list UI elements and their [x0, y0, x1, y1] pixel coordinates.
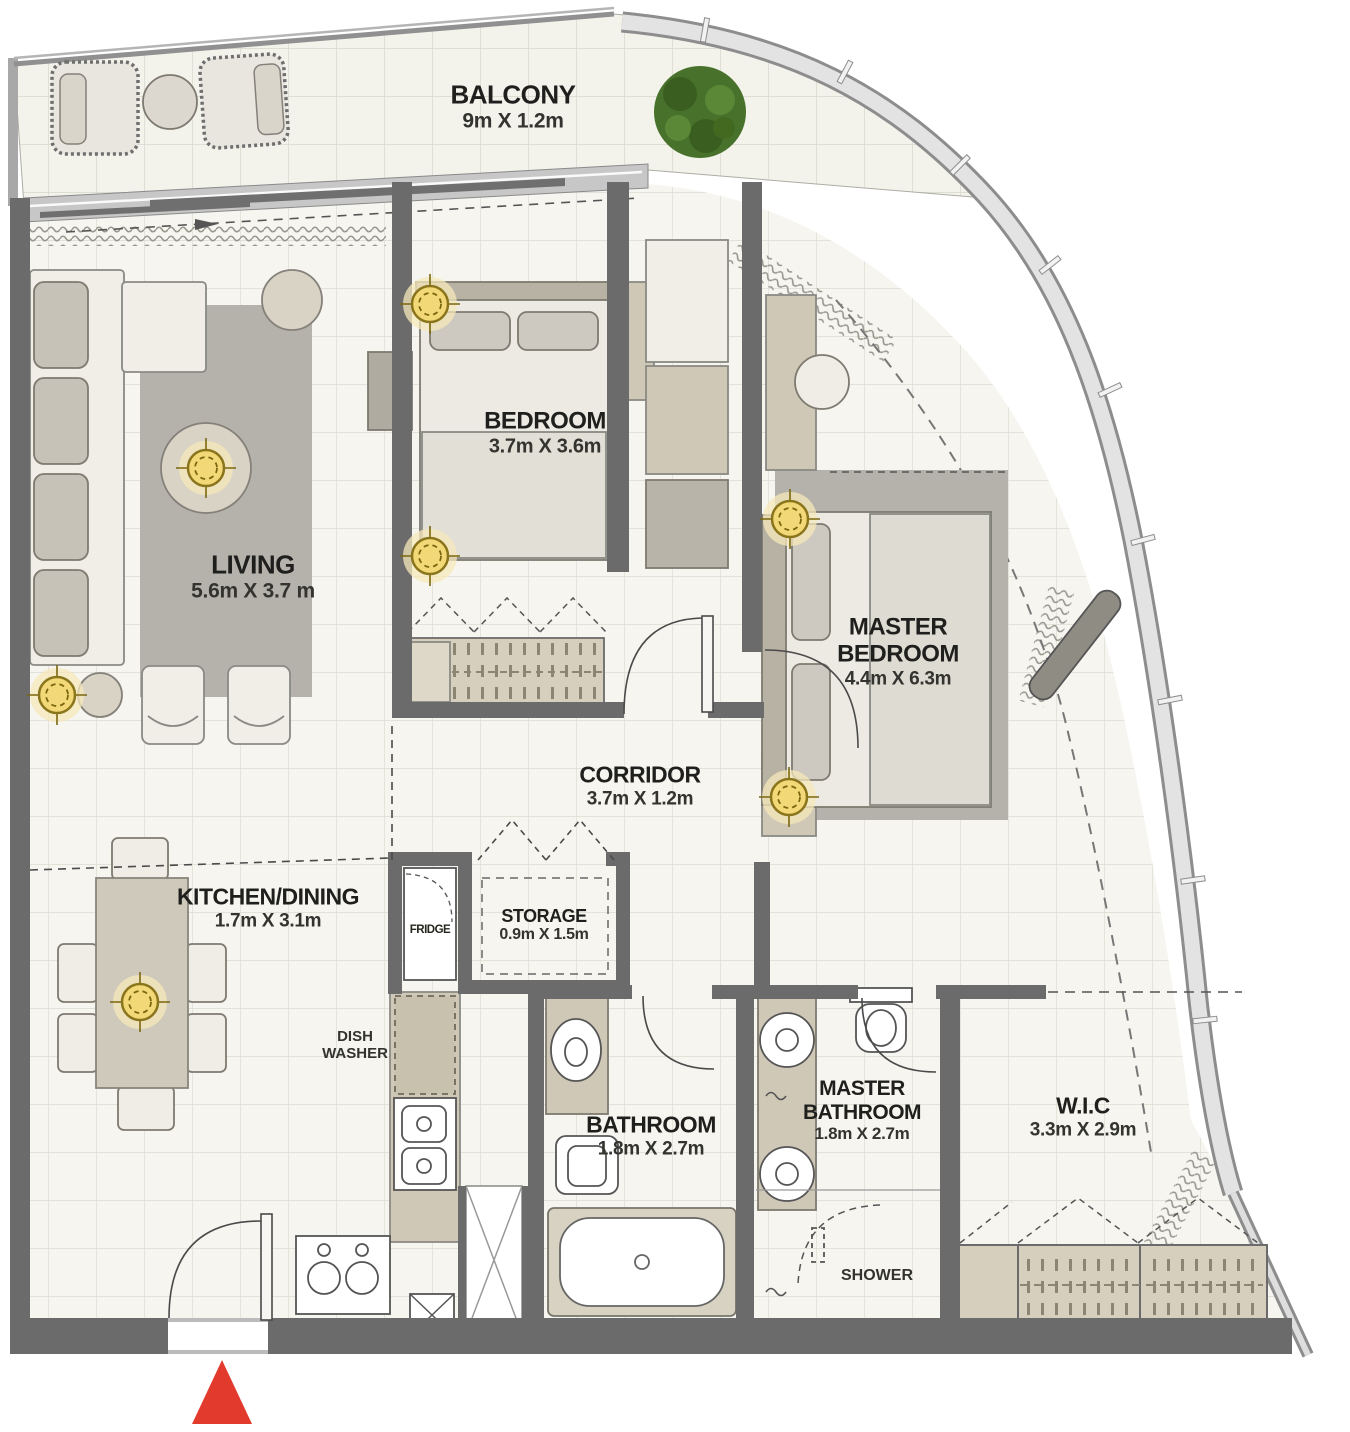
sofa-corner-seat	[122, 282, 206, 372]
plant	[654, 66, 746, 158]
burner	[308, 1262, 340, 1294]
pillow	[518, 312, 598, 350]
dining-chair	[186, 1014, 226, 1072]
washbasin	[760, 1013, 814, 1067]
armchair	[228, 666, 290, 744]
burner	[346, 1262, 378, 1294]
toilet-cistern	[850, 988, 912, 1002]
left-wall	[10, 198, 30, 1354]
cabinet	[646, 480, 728, 568]
entrance-opening	[168, 1318, 268, 1354]
toilet	[856, 1004, 906, 1052]
dishwasher	[395, 996, 455, 1094]
master-bed-headboard	[762, 515, 788, 805]
floor-plan-drawing	[0, 0, 1350, 1432]
side-table	[262, 270, 322, 330]
dining-chair	[118, 1086, 174, 1130]
washbasin	[551, 1019, 601, 1081]
bottom-wall	[10, 1318, 168, 1354]
entrance-door-leaf	[261, 1214, 272, 1320]
washbasin	[760, 1147, 814, 1201]
dining-chair	[58, 1014, 98, 1072]
balcony-left-edge	[8, 58, 18, 206]
fridge	[404, 868, 456, 980]
armchair	[142, 666, 204, 744]
duct-column	[458, 1186, 530, 1334]
floor-plan: BALCONY 9m X 1.2m BEDROOM 3.7m X 3.6m LI…	[0, 0, 1350, 1432]
dining-chair	[58, 944, 98, 1002]
outdoor-table	[143, 75, 197, 129]
bedroom-door-leaf	[702, 616, 713, 712]
bathtub	[560, 1218, 724, 1306]
desk-chair	[795, 355, 849, 409]
dining-chair	[186, 944, 226, 1002]
console-unit	[646, 366, 728, 474]
master-bed-blanket	[870, 514, 990, 805]
dining-chair	[112, 838, 168, 880]
entrance-marker	[192, 1360, 252, 1424]
hall-units	[646, 240, 728, 568]
bottom-wall	[268, 1318, 1292, 1354]
pillow	[792, 664, 830, 780]
tv-unit	[646, 240, 728, 362]
